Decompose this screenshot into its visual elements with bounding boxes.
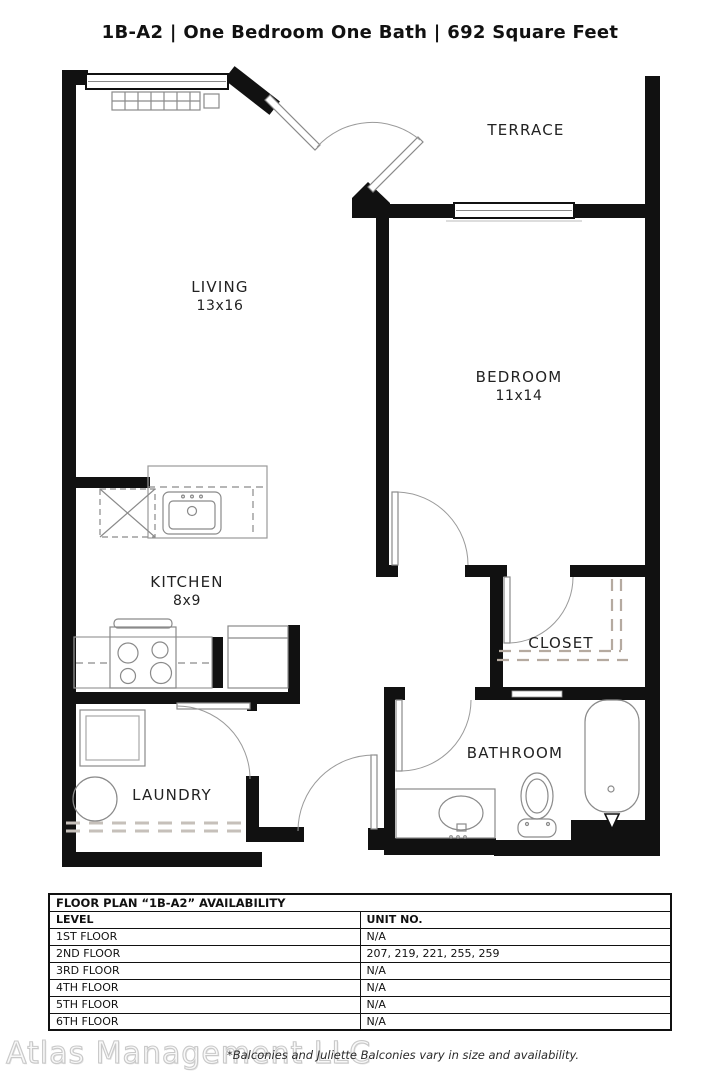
terrace-window <box>446 203 582 221</box>
wall-kitchen-right <box>288 625 300 702</box>
wall-entry-angled <box>236 78 268 103</box>
room-label-closet: CLOSET <box>501 634 621 653</box>
wall-right <box>645 76 660 850</box>
column-header-unit-no: UNIT NO. <box>360 911 671 928</box>
kitchen-sink <box>163 492 221 534</box>
room-dims-kitchen: 8x9 <box>127 592 247 611</box>
room-label-living: LIVING 13x16 <box>160 278 280 316</box>
balcony-disclaimer: *Balconies and Juliette Balconies vary i… <box>227 1048 579 1062</box>
wall-bedroom-door-foot <box>376 565 398 577</box>
water-heater <box>73 777 117 821</box>
vanity-sink <box>396 789 495 838</box>
refrigerator <box>228 626 288 688</box>
floor-plan-page: 1B-A2 | One Bedroom One Bath | 692 Squar… <box>0 0 720 1080</box>
room-dims-living: 13x16 <box>160 297 280 316</box>
wall-laundry-step <box>246 827 304 842</box>
wall-tub-block <box>571 820 660 850</box>
toilet <box>518 773 556 837</box>
wall-top-corner <box>62 70 88 85</box>
room-dims-bedroom: 11x14 <box>459 387 579 406</box>
availability-table-title: FLOOR PLAN “1B-A2” AVAILABILITY <box>49 894 671 911</box>
laundry-shelf-dashes <box>66 823 246 831</box>
stove <box>110 619 176 688</box>
wall-closet-top <box>570 565 658 577</box>
room-label-laundry: LAUNDRY <box>112 786 232 805</box>
dishwasher <box>100 489 155 537</box>
hall-entry-door <box>298 755 377 831</box>
room-label-bathroom: BATHROOM <box>455 744 575 763</box>
hvac-unit <box>112 92 219 110</box>
entry-door <box>265 95 423 192</box>
wall-closet-left <box>490 577 503 687</box>
kitchen-counter <box>100 466 267 538</box>
wall-bathroom-top <box>475 687 658 700</box>
availability-table-title-row: FLOOR PLAN “1B-A2” AVAILABILITY <box>49 894 671 911</box>
wall-left <box>62 70 76 867</box>
room-label-bedroom: BEDROOM 11x14 <box>459 368 579 406</box>
wall-hall-door-frame <box>368 828 384 850</box>
wall-bedroom-top-right <box>572 204 658 218</box>
wall-living-bedroom <box>376 204 389 565</box>
table-row: 1ST FLOOR N/A <box>49 928 671 945</box>
bathroom-wall-niche <box>512 691 562 697</box>
table-row: 4TH FLOOR N/A <box>49 979 671 996</box>
table-row: 6TH FLOOR N/A <box>49 1013 671 1030</box>
wall-stove-stub <box>212 637 223 688</box>
wall-bedroom-bottom-left <box>465 565 507 577</box>
wall-kitchen-laundry <box>62 692 300 704</box>
living-window <box>86 74 228 89</box>
wall-kitchen-stub <box>62 477 150 488</box>
washer-dryer <box>80 710 145 766</box>
wall-laundry-bottom <box>62 852 262 867</box>
table-row: 5TH FLOOR N/A <box>49 996 671 1013</box>
room-label-terrace: TERRACE <box>466 121 586 140</box>
wall-hall-right <box>384 687 395 853</box>
table-row: 3RD FLOOR N/A <box>49 962 671 979</box>
laundry-door <box>177 703 250 779</box>
table-row: 2ND FLOOR 207, 219, 221, 255, 259 <box>49 945 671 962</box>
bedroom-door <box>392 492 468 565</box>
column-header-level: LEVEL <box>49 911 360 928</box>
availability-table: FLOOR PLAN “1B-A2” AVAILABILITY LEVEL UN… <box>48 893 672 1031</box>
availability-table-header-row: LEVEL UNIT NO. <box>49 911 671 928</box>
windows <box>86 74 582 221</box>
wall-laundry-door-frame <box>246 776 259 829</box>
stove-counter <box>74 619 212 688</box>
wall-bathroom-bottom-left <box>384 838 496 855</box>
bathtub <box>585 700 639 829</box>
room-label-kitchen: KITCHEN 8x9 <box>127 573 247 611</box>
